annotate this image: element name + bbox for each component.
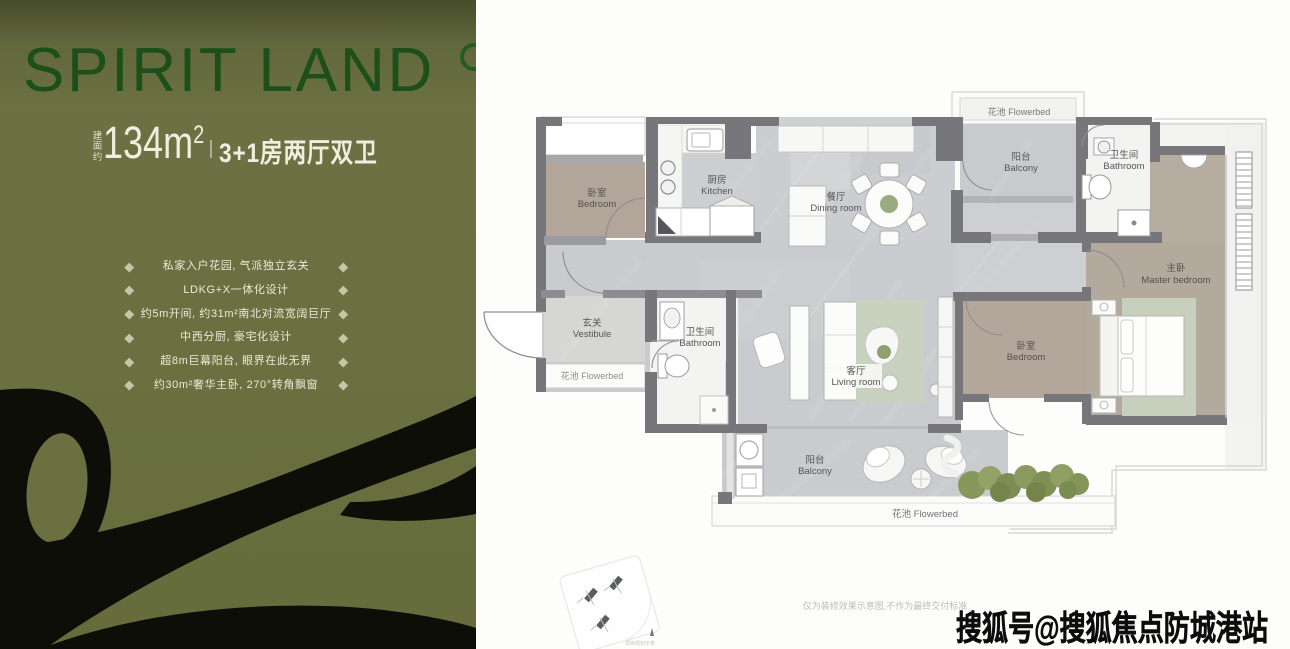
svg-text:花池 Flowerbed: 花池 Flowerbed [988, 106, 1051, 117]
svg-text:搜狐号@搜狐焦点防城港站: 搜狐号@搜狐焦点防城港站 [956, 610, 1268, 648]
svg-text:仅为装修效果示意图,不作为最终交付标准: 仅为装修效果示意图,不作为最终交付标准 [803, 600, 968, 611]
svg-text:Bathroom: Bathroom [679, 338, 720, 349]
svg-text:餐厅: 餐厅 [826, 191, 846, 203]
svg-text:Kitchen: Kitchen [701, 186, 733, 197]
svg-text:玄关: 玄关 [582, 317, 602, 329]
svg-text:卧室: 卧室 [1016, 340, 1035, 352]
svg-text:卧室: 卧室 [587, 187, 606, 199]
svg-text:项目规划示意: 项目规划示意 [625, 640, 655, 647]
svg-text:阳台: 阳台 [1011, 151, 1030, 163]
svg-text:花池 Flowerbed: 花池 Flowerbed [892, 508, 958, 520]
svg-text:厨房: 厨房 [707, 174, 726, 186]
svg-text:花池 Flowerbed: 花池 Flowerbed [561, 370, 624, 381]
svg-text:Living room: Living room [831, 377, 880, 388]
svg-text:Dining room: Dining room [810, 203, 861, 214]
svg-text:客厅: 客厅 [846, 365, 866, 377]
svg-text:Balcony: Balcony [798, 466, 832, 477]
svg-text:主卧: 主卧 [1166, 262, 1186, 274]
svg-text:Bathroom: Bathroom [1103, 161, 1144, 172]
svg-text:Vestibule: Vestibule [573, 329, 612, 340]
svg-text:Bedroom: Bedroom [578, 199, 617, 210]
svg-text:Balcony: Balcony [1004, 163, 1038, 174]
svg-text:阳台: 阳台 [805, 454, 824, 466]
svg-text:Master bedroom: Master bedroom [1141, 275, 1210, 286]
svg-text:卫生间: 卫生间 [1110, 149, 1139, 161]
svg-text:卫生间: 卫生间 [686, 326, 715, 338]
svg-text:Bedroom: Bedroom [1007, 352, 1046, 363]
